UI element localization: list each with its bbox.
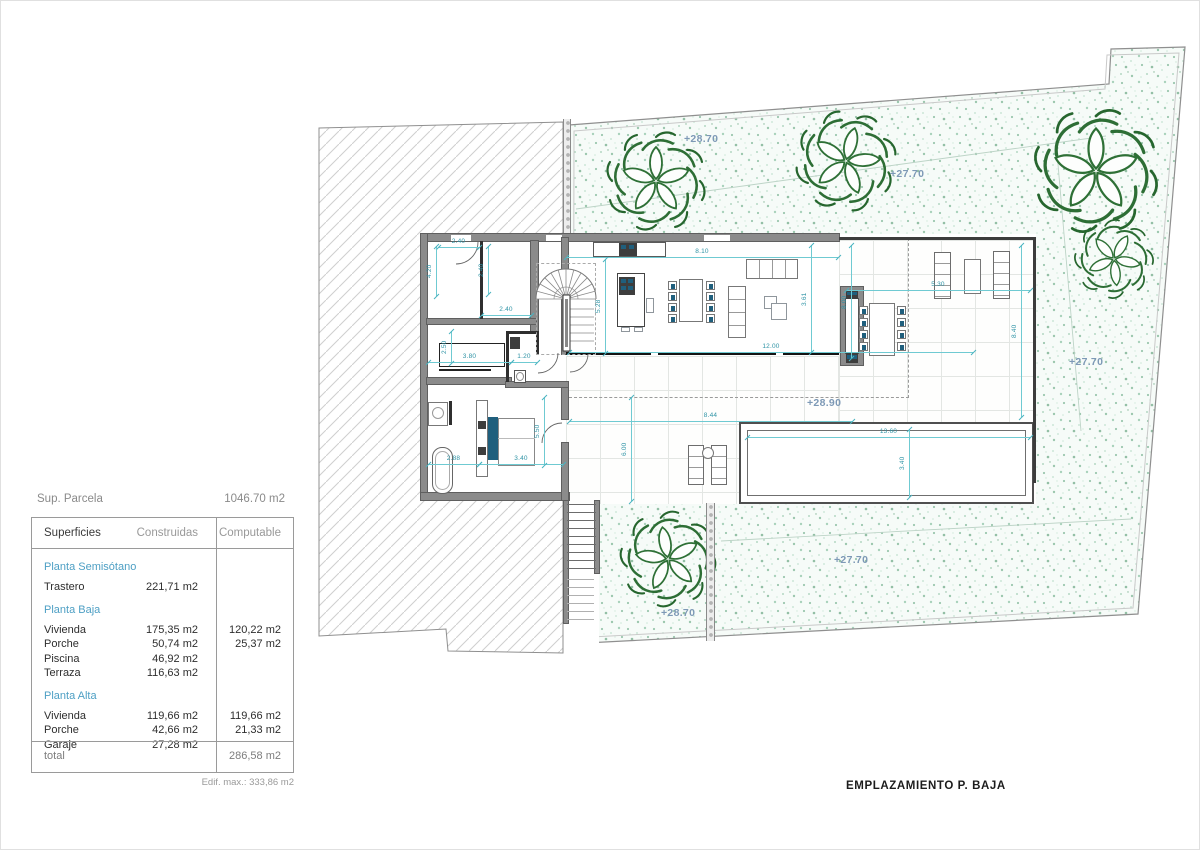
dining-chair (897, 330, 906, 339)
row-construida: 221,71 m2 (146, 580, 198, 595)
dimension-line (428, 464, 479, 465)
dimension-label: 8.10 (690, 248, 714, 255)
porch-lounger (993, 251, 1010, 299)
sofa-vertical (728, 286, 746, 338)
header-construidas: Construidas (137, 527, 198, 539)
dimension-line (605, 259, 606, 353)
dining-chair (897, 306, 906, 315)
dimension-line (511, 362, 537, 363)
washbasin-bowl (432, 407, 444, 419)
dimension-line (569, 352, 973, 353)
dining-chair (668, 303, 677, 312)
table-header: Superficies Construidas Computable (32, 518, 293, 549)
row-name: Porche (44, 723, 79, 738)
island-sink-bowl (621, 286, 626, 290)
stair-tread (567, 619, 594, 620)
elevation-label: +27.70 (1069, 356, 1103, 368)
dining-chair (859, 342, 868, 351)
row-construida: 42,66 m2 (152, 723, 198, 738)
bed-runner (488, 417, 498, 460)
row-name: Vivienda (44, 709, 86, 724)
dimension-label: 5.50 (534, 419, 541, 443)
dimension-line (569, 421, 852, 422)
chair-seat (900, 321, 904, 326)
elevation-label: +28.70 (661, 607, 695, 619)
dimension-label: 4.20 (426, 259, 433, 283)
dimension-label: 3.80 (458, 353, 482, 360)
stair-tread (567, 536, 596, 537)
cooktop-burner (621, 245, 626, 249)
dimension-label: 13.60 (877, 428, 901, 435)
island-sink-bowl (628, 286, 633, 290)
dimension-label: 2.40 (494, 306, 518, 313)
dimension-label: 2.50 (441, 335, 448, 359)
bathroom-vanity (510, 337, 520, 349)
fireplace-accent (847, 292, 857, 295)
parcel-area-label: Sup. Parcela (37, 493, 103, 505)
chair-seat (862, 333, 866, 338)
dimension-line (1021, 245, 1022, 417)
row-computable: 25,37 m2 (235, 637, 281, 652)
chair-seat (671, 317, 675, 322)
island-stool (646, 298, 654, 313)
table-row: Porche 50,74 m2 25,37 m2 (32, 637, 293, 652)
stair-tread (567, 568, 596, 569)
dimension-line (909, 429, 910, 497)
table-row: Piscina 46,92 m2 (32, 652, 293, 667)
section-title: Planta Alta (44, 690, 293, 702)
stair-tread (567, 512, 596, 513)
chair-seat (862, 321, 866, 326)
dimension-line (631, 397, 632, 501)
site-plan-canvas: Sup. Parcela 1046.70 m2 Superficies Cons… (0, 0, 1200, 850)
dimension-line (479, 464, 563, 465)
dimension-line (481, 315, 531, 316)
pool-side-table (702, 447, 714, 459)
dimension-label: 8.44 (699, 412, 723, 419)
dining-chair (706, 314, 715, 323)
stair-tread (567, 560, 596, 561)
dimension-line (488, 246, 489, 294)
parcel-area-row: Sup. Parcela 1046.70 m2 (37, 493, 285, 505)
dining-chair (706, 292, 715, 301)
chair-seat (900, 345, 904, 350)
dining-chair (668, 281, 677, 290)
row-construida: 116,63 m2 (147, 666, 198, 681)
porch-dining-table (869, 303, 895, 356)
table-body: Planta SemisótanoTrastero 221,71 m2 Plan… (32, 548, 293, 742)
row-name: Porche (44, 637, 79, 652)
section-title: Planta Baja (44, 604, 293, 616)
chair-seat (900, 309, 904, 314)
table-row: Vivienda 119,66 m2 119,66 m2 (32, 709, 293, 724)
stair-tread (567, 552, 596, 553)
dimension-label: 8.00 (841, 290, 848, 314)
dimension-line (747, 437, 1030, 438)
stair-tread (567, 587, 594, 588)
dimension-label: 3.40 (509, 455, 533, 462)
island-stool (634, 327, 643, 332)
dimension-label: 5.28 (595, 294, 602, 318)
dimension-line (451, 331, 452, 363)
surfaces-table: Superficies Construidas Computable Plant… (31, 517, 294, 773)
dimension-line (846, 290, 1030, 291)
total-value: 286,58 m2 (229, 750, 281, 762)
dimension-line (811, 245, 812, 352)
bedside-lamp (478, 447, 486, 455)
island-sink-bowl (628, 279, 633, 283)
dimension-label: 5.30 (926, 281, 950, 288)
row-construida: 175,35 m2 (146, 623, 198, 638)
stair-tread (567, 579, 594, 580)
table-row: Trastero 221,71 m2 (32, 580, 293, 595)
table-row: Terraza 116,63 m2 (32, 666, 293, 681)
dimension-label: 2.40 (478, 258, 485, 282)
dimension-line (438, 247, 479, 248)
stair-tread (567, 504, 596, 505)
header-computable: Computable (219, 527, 281, 539)
dimension-label: 8.40 (1011, 319, 1018, 343)
elevation-label: +28.70 (684, 133, 718, 145)
chair-seat (671, 284, 675, 289)
dimension-line (851, 245, 852, 358)
row-name: Piscina (44, 652, 79, 667)
row-name: Trastero (44, 580, 85, 595)
boundary-wall-north (563, 119, 571, 238)
dining-table (679, 279, 703, 322)
dimension-label: 3.61 (801, 287, 808, 311)
island-sink-bowl (621, 279, 626, 283)
stair-tread (567, 528, 596, 529)
dimension-label: 2.40 (447, 238, 471, 245)
closet-bar (449, 401, 452, 425)
bed-sheet-line (498, 438, 535, 439)
dining-chair (706, 281, 715, 290)
row-computable: 120,22 m2 (229, 623, 281, 638)
exterior-stair-strip (564, 499, 599, 646)
island-stool (621, 327, 630, 332)
drawing-caption: EMPLAZAMIENTO P. BAJA (846, 780, 1006, 792)
row-name: Vivienda (44, 623, 86, 638)
dining-chair (859, 318, 868, 327)
row-construida: 46,92 m2 (152, 652, 198, 667)
dining-chair (897, 342, 906, 351)
stair-tread (567, 603, 594, 604)
chair-seat (900, 333, 904, 338)
elevation-label: +27.70 (834, 554, 868, 566)
stair-tread (567, 544, 596, 545)
elevation-label: +27.70 (890, 168, 924, 180)
dimension-line (436, 246, 437, 296)
dimension-line (544, 397, 545, 465)
dimension-label: 1.20 (512, 353, 536, 360)
boundary-wall-south (706, 503, 715, 641)
row-name: Terraza (44, 666, 81, 681)
chair-seat (862, 345, 866, 350)
row-construida: 119,66 m2 (147, 709, 198, 724)
dimension-label: 2.88 (442, 455, 466, 462)
dining-chair (859, 330, 868, 339)
stair-tread (567, 595, 594, 596)
stair-tread (567, 611, 594, 612)
stair-tread (567, 520, 596, 521)
table-total-row: total 286,58 m2 (32, 741, 293, 772)
coffee-table (771, 303, 787, 320)
chair-seat (862, 309, 866, 314)
dining-chair (668, 292, 677, 301)
chair-seat (709, 295, 713, 300)
laundry-shelf-line (439, 369, 491, 371)
bedside-lamp (478, 421, 486, 429)
table-row: Vivienda 175,35 m2 120,22 m2 (32, 623, 293, 638)
dining-chair (706, 303, 715, 312)
chair-seat (709, 317, 713, 322)
cooktop-burner (629, 245, 634, 249)
parcel-area-value: 1046.70 m2 (224, 493, 285, 505)
chair-seat (671, 306, 675, 311)
elevation-label: +28.90 (807, 397, 841, 409)
toilet-bowl (516, 372, 524, 381)
table-row: Porche 42,66 m2 21,33 m2 (32, 723, 293, 738)
dimension-label: 6.00 (621, 437, 628, 461)
chair-seat (709, 284, 713, 289)
sofa-horizontal (746, 259, 798, 279)
total-label: total (44, 750, 65, 762)
section-title: Planta Semisótano (44, 561, 293, 573)
dimension-label: 12.00 (759, 343, 783, 350)
header-superficies: Superficies (44, 527, 101, 539)
row-computable: 21,33 m2 (235, 723, 281, 738)
dining-chair (897, 318, 906, 327)
dining-chair (859, 306, 868, 315)
dimension-line (428, 362, 511, 363)
row-construida: 50,74 m2 (152, 637, 198, 652)
row-computable: 119,66 m2 (230, 709, 281, 724)
dimension-label: 3.40 (899, 451, 906, 475)
buildable-max-note: Edif. max.: 333,86 m2 (151, 777, 294, 788)
chair-seat (709, 306, 713, 311)
porch-lounger (934, 252, 951, 299)
dining-chair (668, 314, 677, 323)
porch-side-table (964, 259, 981, 294)
chair-seat (671, 295, 675, 300)
